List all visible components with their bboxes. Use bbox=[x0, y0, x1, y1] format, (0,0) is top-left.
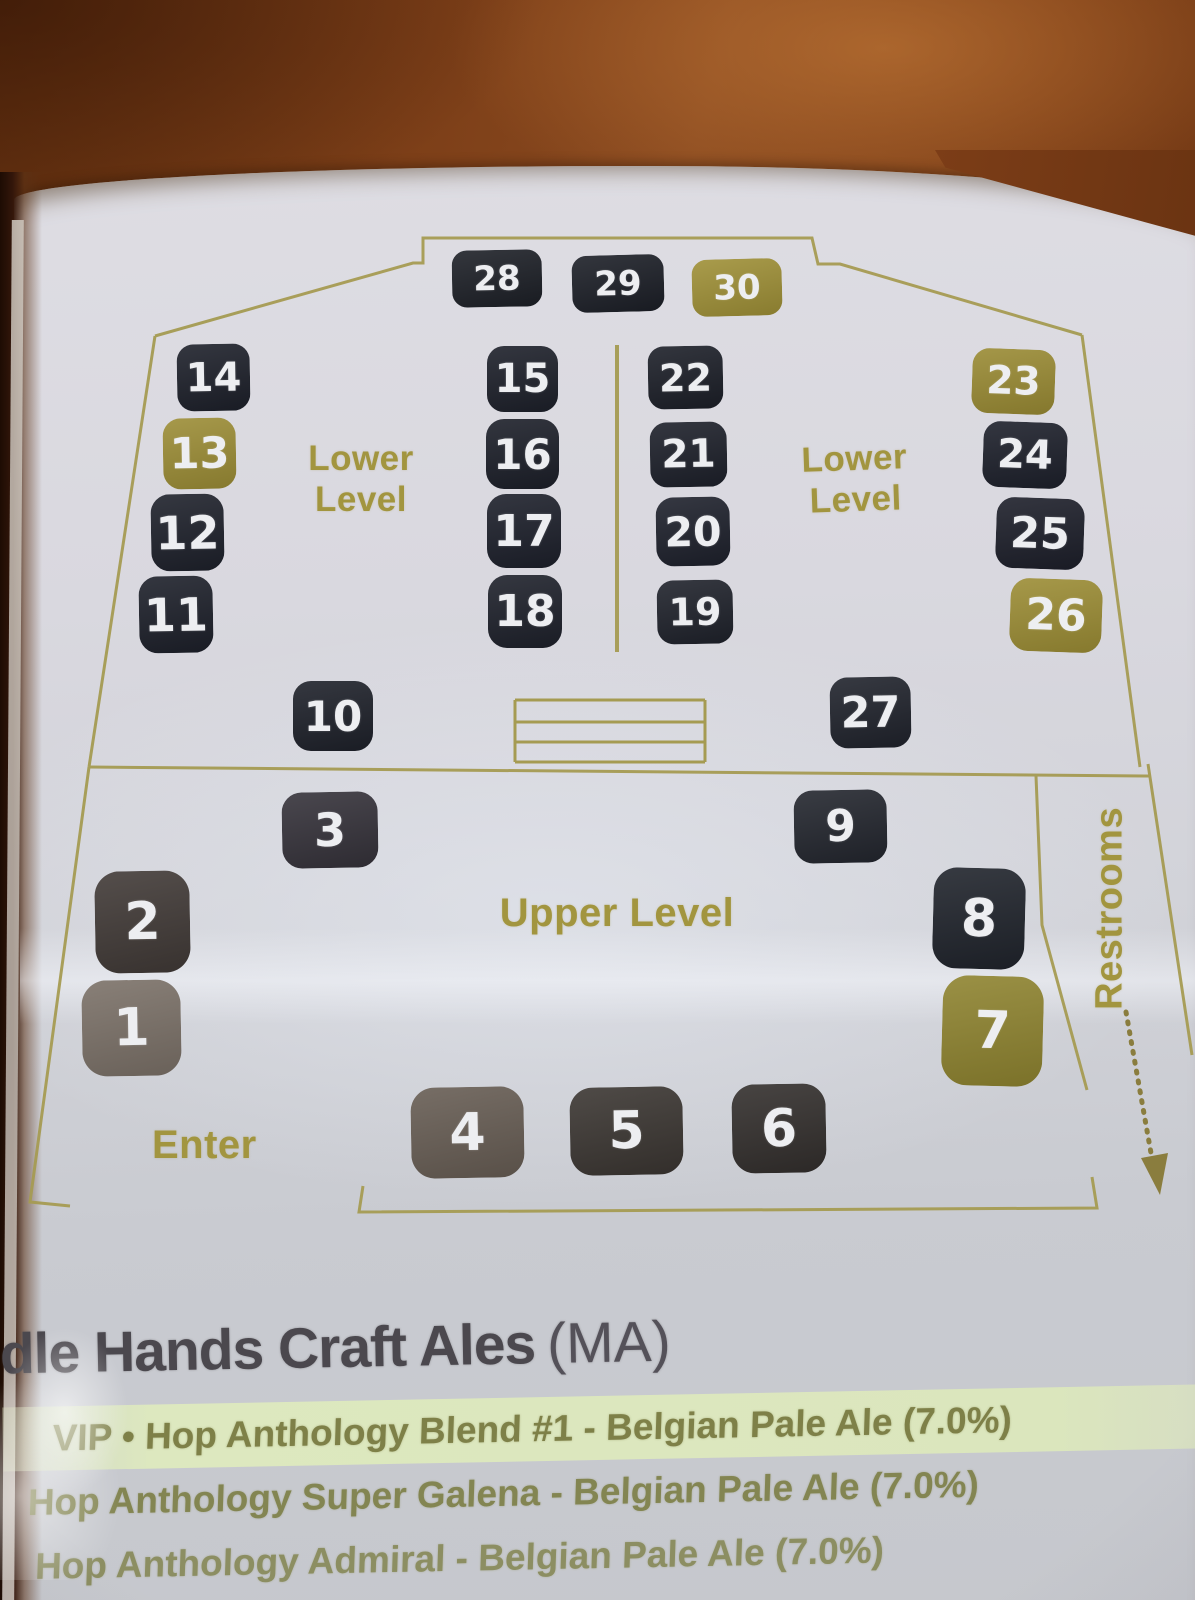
lower-level-right-label: Lower Level bbox=[779, 435, 932, 523]
bottom-wall bbox=[359, 1177, 1097, 1212]
booth-17: 17 bbox=[487, 494, 561, 568]
enter-label: Enter bbox=[152, 1122, 352, 1169]
booth-27: 27 bbox=[829, 676, 911, 748]
booth-11: 11 bbox=[138, 575, 213, 653]
stairs-icon bbox=[515, 700, 705, 762]
restrooms-label: Restrooms bbox=[1088, 798, 1133, 1018]
booth-7: 7 bbox=[941, 975, 1045, 1088]
booth-6: 6 bbox=[731, 1083, 827, 1174]
booth-9: 9 bbox=[793, 789, 887, 864]
booth-12: 12 bbox=[150, 493, 224, 571]
booth-19: 19 bbox=[656, 579, 733, 644]
restrooms-arrow-icon bbox=[1126, 1012, 1168, 1195]
booth-29: 29 bbox=[571, 254, 664, 313]
booth-13: 13 bbox=[162, 417, 236, 489]
booth-26: 26 bbox=[1009, 577, 1103, 653]
booth-25: 25 bbox=[995, 496, 1085, 570]
booth-20: 20 bbox=[655, 496, 730, 566]
booth-2: 2 bbox=[94, 870, 191, 974]
booth-23: 23 bbox=[971, 348, 1056, 416]
inner-right-wall-upper bbox=[1036, 776, 1087, 1090]
booth-21: 21 bbox=[649, 421, 727, 487]
booth-30: 30 bbox=[691, 258, 782, 317]
lower-level-left-label: Lower Level bbox=[286, 438, 436, 521]
booth-24: 24 bbox=[982, 421, 1068, 490]
booth-10: 10 bbox=[293, 681, 373, 751]
booth-5: 5 bbox=[569, 1086, 684, 1176]
booth-4: 4 bbox=[410, 1086, 525, 1179]
restroom-corridor-wall bbox=[1148, 764, 1192, 1055]
glare-highlight bbox=[0, 1300, 260, 1580]
booth-22: 22 bbox=[647, 345, 723, 409]
booth-15: 15 bbox=[487, 346, 558, 412]
booth-18: 18 bbox=[488, 575, 562, 648]
booth-3: 3 bbox=[281, 791, 378, 869]
booth-14: 14 bbox=[176, 343, 250, 411]
booth-16: 16 bbox=[486, 419, 559, 489]
right-wall-lower bbox=[1082, 335, 1140, 767]
left-wall-upper bbox=[30, 767, 89, 1206]
level-divider-wall bbox=[89, 767, 1150, 776]
left-wall-lower bbox=[89, 336, 155, 767]
booth-1: 1 bbox=[81, 979, 182, 1077]
brewery-region: (MA) bbox=[547, 1310, 672, 1376]
upper-level-label: Upper Level bbox=[457, 890, 777, 937]
booth-8: 8 bbox=[932, 867, 1027, 970]
photo-of-program-page: 2829301413121115161718222120192324252610… bbox=[0, 0, 1195, 1600]
booth-28: 28 bbox=[452, 249, 543, 308]
